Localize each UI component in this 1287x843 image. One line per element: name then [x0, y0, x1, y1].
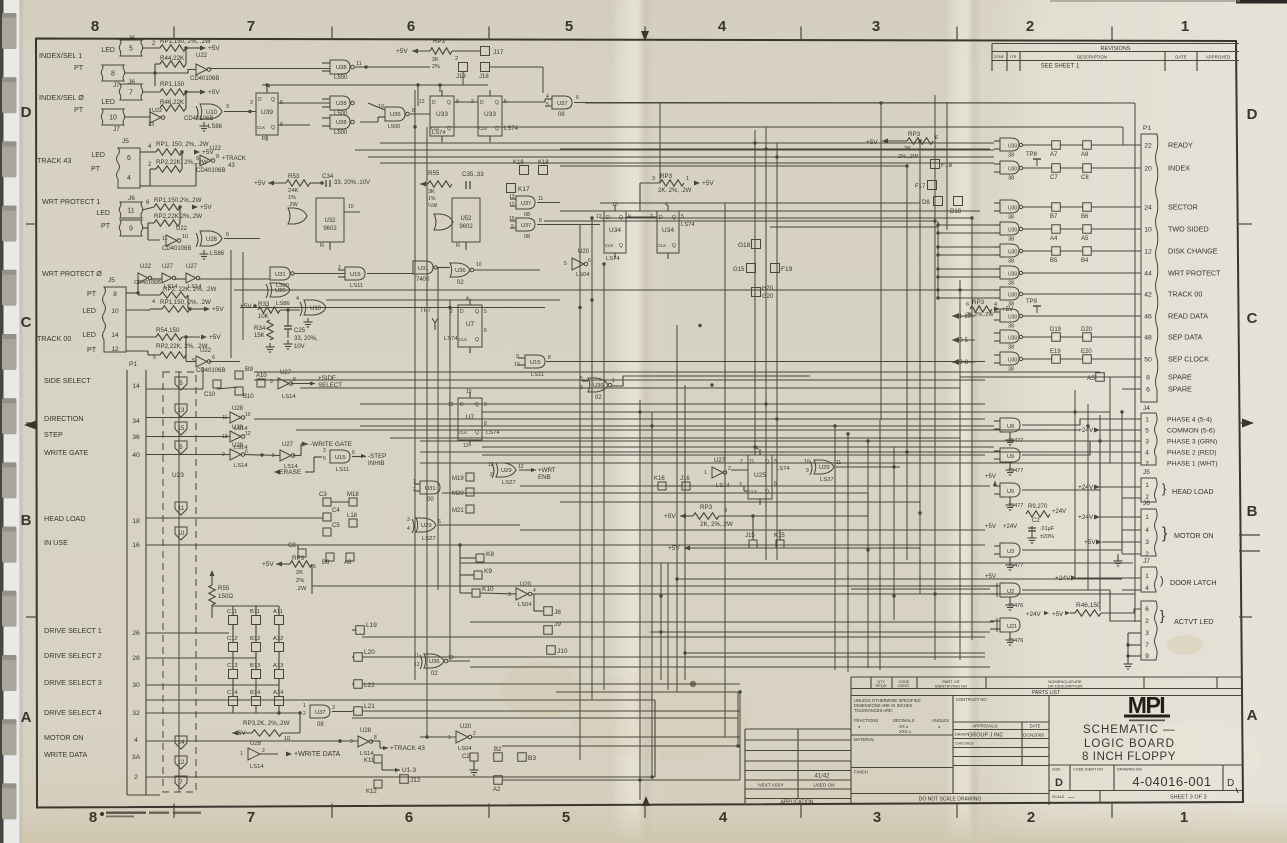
svg-text:5: 5: [484, 309, 487, 315]
svg-text:LS14: LS14: [234, 463, 248, 469]
svg-text:SCALE: SCALE: [1052, 795, 1065, 799]
svg-text:E19: E19: [1050, 349, 1061, 355]
svg-text:C7: C7: [1050, 175, 1058, 181]
svg-text:CLK: CLK: [605, 243, 613, 248]
svg-text:±20%: ±20%: [1040, 534, 1054, 540]
svg-text:41/42: 41/42: [814, 774, 830, 780]
svg-text:H20: H20: [762, 286, 774, 292]
svg-text:TWO SIDED: TWO SIDED: [1168, 225, 1209, 234]
svg-text:C13: C13: [227, 663, 238, 669]
svg-text:5: 5: [272, 453, 275, 459]
svg-text:D: D: [432, 100, 436, 106]
svg-text:+5V: +5V: [1084, 539, 1096, 546]
svg-text:J19: J19: [456, 74, 466, 80]
svg-text:C4: C4: [332, 508, 340, 514]
svg-text:22: 22: [1144, 143, 1152, 150]
svg-text:J4: J4: [1143, 405, 1150, 412]
svg-text:LS74: LS74: [606, 256, 620, 262]
svg-text:38: 38: [1008, 215, 1014, 221]
svg-text:4: 4: [127, 175, 131, 182]
svg-text:INDEX/SEL Ø: INDEX/SEL Ø: [39, 93, 84, 102]
svg-text:U38: U38: [336, 65, 347, 71]
svg-text:1: 1: [448, 735, 451, 741]
svg-text:G20: G20: [762, 294, 774, 300]
svg-text:3A: 3A: [132, 754, 141, 761]
svg-text:24K: 24K: [288, 188, 298, 194]
svg-text:DIRECTION: DIRECTION: [44, 414, 84, 423]
svg-text:A6: A6: [344, 560, 352, 566]
svg-text:46: 46: [1144, 314, 1152, 321]
svg-text:10: 10: [1144, 227, 1152, 234]
svg-text:3: 3: [323, 448, 326, 454]
svg-text:PHASE 2 (RED): PHASE 2 (RED): [1167, 450, 1216, 457]
svg-text:LS86: LS86: [208, 124, 223, 130]
svg-text:RP1,150,2%,.2W: RP1,150,2%,.2W: [154, 197, 202, 204]
svg-text:10: 10: [348, 204, 354, 210]
svg-text:}: }: [1162, 481, 1167, 496]
svg-text:18: 18: [132, 518, 140, 525]
svg-text:LS14: LS14: [250, 764, 264, 770]
svg-text:PHASE 1 (WHT): PHASE 1 (WHT): [1167, 461, 1218, 468]
svg-text:R: R: [262, 136, 266, 142]
svg-text:2: 2: [728, 466, 731, 472]
svg-text:Q: Q: [475, 309, 479, 315]
svg-text:G18: G18: [738, 242, 751, 249]
svg-text:B9: B9: [245, 366, 253, 373]
svg-text:LS74: LS74: [681, 222, 695, 228]
svg-text:12: 12: [596, 214, 602, 220]
svg-text:A4: A4: [1050, 236, 1058, 242]
svg-text:3: 3: [226, 104, 229, 110]
svg-text:4: 4: [533, 588, 536, 594]
svg-text:4: 4: [718, 18, 727, 35]
svg-text:U10: U10: [206, 110, 218, 116]
svg-text:8: 8: [1146, 375, 1150, 382]
svg-text:8: 8: [111, 71, 115, 78]
svg-text:15: 15: [178, 426, 185, 432]
svg-text:TRACK 43: TRACK 43: [37, 156, 71, 165]
svg-text:M21: M21: [452, 508, 464, 514]
svg-text:LED: LED: [96, 210, 110, 217]
svg-text:D: D: [480, 100, 484, 106]
svg-text:J10: J10: [557, 648, 568, 655]
svg-text:C8: C8: [1081, 175, 1089, 181]
svg-text:J5: J5: [122, 138, 129, 145]
svg-text:LS27: LS27: [502, 480, 516, 486]
svg-text:+5V: +5V: [208, 89, 220, 96]
svg-text:44: 44: [1144, 271, 1152, 278]
svg-text:U15: U15: [530, 360, 541, 366]
svg-text:INDEX: INDEX: [1168, 164, 1190, 173]
svg-text:2: 2: [1026, 18, 1034, 35]
svg-text:+24V: +24V: [1003, 524, 1017, 530]
svg-text:U36: U36: [429, 659, 440, 665]
svg-text:1%: 1%: [288, 195, 296, 201]
svg-text:OR DESCRIPTION: OR DESCRIPTION: [1048, 684, 1083, 689]
svg-text:4: 4: [296, 296, 299, 302]
svg-text:WRT PROTECT Ø: WRT PROTECT Ø: [42, 269, 102, 278]
svg-text:IN USE: IN USE: [44, 538, 68, 547]
svg-text:U30: U30: [1008, 206, 1017, 212]
svg-text:ENB: ENB: [538, 474, 551, 481]
svg-text:REQD: REQD: [876, 684, 887, 688]
svg-text:D: D: [21, 104, 32, 121]
svg-text:1: 1: [612, 378, 615, 384]
svg-text:6: 6: [484, 328, 487, 334]
svg-text:U20: U20: [460, 724, 472, 730]
svg-text:2K, 2%, .2W: 2K, 2%, .2W: [658, 188, 692, 194]
svg-text:11: 11: [127, 208, 134, 215]
svg-text:PHASE 3 (GRN): PHASE 3 (GRN): [1167, 439, 1217, 446]
svg-text:TRACK 00: TRACK 00: [1168, 290, 1202, 299]
svg-text:U37: U37: [521, 223, 531, 229]
svg-text:RP1,150, 2%, .2W: RP1,150, 2%, .2W: [160, 38, 211, 45]
svg-text:.XXX ±: .XXX ±: [898, 729, 912, 734]
svg-text:LS14: LS14: [282, 394, 296, 400]
svg-text:1: 1: [1145, 573, 1149, 580]
svg-text:U33: U33: [484, 111, 496, 118]
svg-text:A5: A5: [1087, 375, 1095, 382]
svg-text:J17: J17: [493, 49, 504, 56]
svg-text:DRIVE SELECT 3: DRIVE SELECT 3: [44, 678, 102, 687]
svg-text:F17: F17: [915, 184, 926, 190]
svg-text:Q: Q: [495, 100, 499, 106]
svg-text:4: 4: [152, 299, 155, 305]
svg-text:36: 36: [132, 434, 140, 441]
svg-text:U36: U36: [455, 268, 466, 274]
svg-text:U52: U52: [460, 216, 472, 222]
svg-text:-ERASE: -ERASE: [277, 469, 302, 476]
svg-text:R55: R55: [428, 170, 440, 177]
svg-text:PT: PT: [74, 63, 84, 72]
svg-text:38: 38: [1008, 176, 1014, 182]
svg-text:13: 13: [463, 443, 469, 449]
svg-text:3: 3: [652, 176, 655, 182]
svg-text:13: 13: [178, 408, 185, 414]
svg-text:C3: C3: [319, 492, 327, 498]
svg-text:A7: A7: [1050, 152, 1058, 158]
svg-text:9: 9: [516, 354, 519, 360]
svg-text:K8: K8: [486, 551, 494, 558]
svg-text:A8: A8: [1081, 152, 1089, 158]
svg-text:40: 40: [132, 452, 140, 459]
svg-text:LTR: LTR: [1010, 55, 1017, 59]
svg-text:+TRACK: +TRACK: [222, 156, 246, 162]
svg-text:38: 38: [1008, 237, 1014, 243]
svg-text:43: 43: [228, 163, 235, 169]
svg-text:4: 4: [1145, 585, 1149, 592]
svg-text:14: 14: [111, 332, 119, 339]
svg-text:J12: J12: [410, 777, 421, 784]
svg-text:D: D: [460, 402, 464, 408]
svg-text:6: 6: [226, 232, 229, 238]
svg-text:C10: C10: [204, 392, 216, 398]
svg-text:DOOR LATCH: DOOR LATCH: [1170, 578, 1217, 587]
svg-text:38: 38: [1008, 324, 1014, 330]
svg-text:12: 12: [245, 431, 251, 437]
svg-text:LED: LED: [82, 332, 96, 339]
svg-text:C12: C12: [227, 636, 238, 642]
svg-text:U21: U21: [1007, 624, 1017, 630]
svg-text:M18: M18: [347, 492, 359, 498]
svg-text:ANGLES: ANGLES: [932, 718, 949, 723]
svg-text:PT: PT: [91, 166, 101, 173]
svg-text:WRITE GATE: WRITE GATE: [44, 448, 88, 457]
svg-text:U30: U30: [1008, 250, 1017, 256]
svg-text:TP7: TP7: [420, 308, 432, 314]
svg-text:LS74: LS74: [486, 430, 500, 436]
svg-text:08: 08: [558, 112, 565, 118]
svg-text:D: D: [258, 97, 262, 103]
svg-text:LS11: LS11: [531, 372, 544, 378]
svg-text:6: 6: [966, 302, 969, 308]
svg-text:+TRACK 43: +TRACK 43: [390, 745, 425, 752]
svg-text:3: 3: [739, 482, 742, 488]
svg-text:DCN2068: DCN2068: [1023, 733, 1044, 739]
svg-text:K11: K11: [364, 758, 375, 764]
svg-text:K9: K9: [484, 568, 492, 575]
svg-text:IDENT: IDENT: [898, 684, 910, 688]
svg-text:LS27: LS27: [422, 536, 436, 542]
svg-text:1: 1: [303, 703, 306, 709]
svg-text:+5V: +5V: [664, 513, 676, 520]
svg-text:U22: U22: [200, 348, 212, 354]
svg-text:D20: D20: [1081, 327, 1093, 333]
svg-text:U30: U30: [1008, 315, 1017, 321]
svg-text:9: 9: [129, 226, 133, 233]
svg-text:5: 5: [564, 261, 567, 267]
svg-text:B: B: [1247, 503, 1258, 520]
svg-text:RP1,150, 2%, .2W: RP1,150, 2%, .2W: [160, 299, 211, 306]
svg-text:38: 38: [1008, 345, 1014, 351]
svg-text:5: 5: [562, 809, 570, 826]
svg-text:+24V: +24V: [1026, 611, 1041, 618]
svg-text:K10: K10: [482, 586, 494, 593]
svg-text:1: 1: [240, 751, 243, 757]
svg-text:U33: U33: [436, 111, 448, 118]
svg-text:38: 38: [1008, 153, 1014, 159]
svg-text:1%: 1%: [428, 196, 436, 202]
svg-text:J6: J6: [1143, 500, 1150, 507]
svg-text:6: 6: [576, 95, 579, 101]
svg-text:WRITE DATA: WRITE DATA: [44, 750, 87, 759]
svg-text:4-04016-001: 4-04016-001: [1132, 774, 1211, 789]
svg-text:2: 2: [473, 731, 476, 737]
svg-text:HEAD LOAD: HEAD LOAD: [44, 514, 86, 523]
svg-text:4: 4: [1145, 527, 1149, 534]
svg-text:U26: U26: [206, 237, 218, 243]
svg-text:Q: Q: [619, 243, 623, 249]
svg-text:6: 6: [405, 809, 413, 826]
svg-text:DATE: DATE: [1030, 724, 1041, 729]
svg-text:RP2,22K,2%,.2W: RP2,22K,2%,.2W: [154, 213, 202, 220]
svg-text:U27: U27: [280, 370, 292, 376]
svg-text:U30: U30: [1008, 336, 1017, 342]
svg-text:9: 9: [484, 402, 487, 408]
svg-text:3: 3: [508, 592, 511, 598]
svg-text:.2W: .2W: [288, 202, 299, 208]
svg-text:LS74: LS74: [776, 466, 790, 472]
svg-text:10: 10: [466, 389, 472, 395]
svg-text:2: 2: [490, 472, 493, 478]
svg-text:5: 5: [565, 18, 573, 35]
svg-text:D: D: [1247, 106, 1258, 123]
svg-text:3: 3: [873, 809, 881, 826]
svg-text:L21: L21: [364, 703, 375, 710]
svg-text:R53: R53: [288, 173, 300, 180]
svg-text:00: 00: [427, 497, 434, 503]
svg-text:U37: U37: [521, 201, 531, 207]
svg-text:150Ω: 150Ω: [218, 593, 233, 600]
svg-text:D18: D18: [950, 209, 962, 215]
svg-text:D: D: [1055, 777, 1063, 789]
svg-text:LED: LED: [82, 308, 96, 315]
svg-text:3: 3: [872, 18, 880, 35]
svg-text:LED: LED: [101, 99, 115, 106]
svg-text:U28: U28: [232, 406, 244, 412]
svg-text:10K: 10K: [258, 314, 269, 320]
svg-text:U27: U27: [186, 264, 198, 270]
svg-text:MOTOR ON: MOTOR ON: [1174, 531, 1213, 540]
svg-text:6: 6: [352, 450, 355, 456]
svg-text:F19: F19: [781, 266, 793, 273]
svg-text:U30: U30: [1008, 358, 1017, 364]
svg-text:5: 5: [153, 355, 156, 361]
svg-text:U27: U27: [162, 264, 174, 270]
svg-text:COMMON (5-6): COMMON (5-6): [1167, 428, 1215, 435]
svg-text:¼W: ¼W: [428, 203, 437, 209]
svg-text:U39: U39: [261, 109, 273, 116]
svg-text:M19: M19: [452, 476, 464, 482]
svg-text:12: 12: [509, 202, 515, 208]
svg-text:B6: B6: [322, 560, 330, 566]
svg-text:LS86: LS86: [276, 301, 290, 307]
svg-text:P1: P1: [129, 361, 137, 368]
svg-text:MATERIAL: MATERIAL: [854, 737, 875, 742]
svg-text:B10: B10: [243, 394, 254, 400]
svg-text:U37: U37: [557, 101, 568, 107]
svg-text:LED: LED: [91, 152, 105, 159]
svg-text:DRIVE SELECT 4: DRIVE SELECT 4: [44, 708, 102, 717]
svg-text:SEP CLOCK: SEP CLOCK: [1168, 355, 1209, 364]
svg-text:2K: 2K: [296, 570, 303, 576]
svg-text:U38: U38: [336, 120, 347, 126]
svg-text:J6: J6: [128, 195, 135, 202]
svg-text:DRAWING NO: DRAWING NO: [1117, 768, 1142, 772]
svg-text:): ): [1160, 575, 1164, 587]
svg-text:6: 6: [212, 355, 215, 361]
svg-text:NEXT ASSY: NEXT ASSY: [758, 783, 783, 788]
svg-text:14: 14: [132, 383, 140, 390]
svg-text:LED: LED: [101, 47, 115, 54]
svg-text:4: 4: [724, 508, 727, 514]
svg-text:5: 5: [1145, 428, 1149, 435]
svg-text:CD40106B: CD40106B: [196, 368, 225, 374]
svg-text:U37: U37: [315, 710, 326, 716]
svg-text:R44,22K: R44,22K: [160, 55, 185, 62]
svg-text:U22: U22: [176, 226, 188, 232]
svg-text:+24V: +24V: [1052, 509, 1066, 515]
svg-text:L20: L20: [364, 649, 375, 656]
svg-text:2K: 2K: [432, 57, 439, 63]
svg-text:33, 20%,: 33, 20%,: [294, 336, 318, 342]
svg-text:RP3: RP3: [700, 504, 713, 511]
svg-text:A2: A2: [493, 787, 501, 793]
svg-text:4: 4: [407, 526, 410, 532]
svg-text:11: 11: [162, 236, 168, 242]
svg-text:LS86: LS86: [210, 251, 225, 257]
svg-text:U27: U27: [282, 442, 294, 448]
svg-text:FRACTIONS: FRACTIONS: [854, 718, 878, 723]
svg-text:20: 20: [1144, 166, 1152, 173]
svg-text:.2W: .2W: [296, 586, 307, 592]
svg-text:U20: U20: [520, 582, 532, 588]
svg-text:LS11: LS11: [350, 283, 363, 289]
svg-text:DRIVE SELECT 1: DRIVE SELECT 1: [44, 626, 102, 635]
svg-text:02: 02: [595, 395, 602, 401]
svg-text:U29: U29: [501, 468, 512, 474]
svg-text:4: 4: [719, 809, 728, 826]
svg-text:TP9: TP9: [1026, 299, 1038, 305]
svg-text:8: 8: [216, 154, 219, 160]
svg-text:C5: C5: [332, 523, 340, 529]
svg-text:48: 48: [1144, 335, 1152, 342]
svg-text:8: 8: [539, 218, 542, 224]
svg-text:5: 5: [546, 102, 549, 108]
svg-text:-STEP: -STEP: [368, 453, 386, 460]
svg-text:6: 6: [127, 155, 131, 162]
svg-text:5: 5: [681, 214, 684, 220]
svg-text:U31: U31: [275, 272, 286, 278]
svg-text:READY: READY: [1168, 141, 1193, 150]
svg-text:1: 1: [704, 470, 707, 476]
svg-text:U28: U28: [360, 728, 372, 734]
svg-text:+5V: +5V: [254, 180, 266, 187]
svg-text:9: 9: [511, 224, 514, 230]
svg-text:J15: J15: [745, 533, 755, 539]
svg-text:D19: D19: [1050, 327, 1062, 333]
svg-text:L19: L19: [366, 622, 377, 629]
svg-text:+24V: +24V: [1078, 427, 1094, 434]
svg-text:B3: B3: [528, 755, 536, 762]
svg-text:C25: C25: [294, 328, 306, 334]
svg-text:2: 2: [250, 100, 253, 106]
svg-text:GROUP J INC: GROUP J INC: [968, 733, 1003, 739]
svg-text:B13: B13: [250, 663, 260, 669]
svg-text:C: C: [1247, 310, 1258, 327]
svg-text:DECIMALS: DECIMALS: [893, 718, 915, 723]
svg-text:U3: U3: [1007, 549, 1014, 555]
svg-text:FINISH: FINISH: [854, 770, 868, 775]
svg-text:12: 12: [178, 760, 185, 766]
svg-text:B6: B6: [1081, 214, 1089, 220]
svg-text:10V: 10V: [294, 344, 305, 350]
svg-text:30: 30: [132, 682, 140, 689]
svg-text:U29: U29: [819, 465, 830, 471]
svg-text:ACTVT LED: ACTVT LED: [1174, 617, 1213, 626]
svg-text:4: 4: [466, 296, 469, 302]
svg-text:CHECKED: CHECKED: [955, 742, 974, 746]
svg-text:Q: Q: [271, 125, 275, 131]
svg-text:50: 50: [1144, 357, 1152, 364]
svg-text:R9,270: R9,270: [1028, 504, 1048, 510]
svg-text:L22: L22: [364, 682, 375, 689]
svg-text:+5V: +5V: [1002, 306, 1014, 313]
svg-text:J5: J5: [1143, 469, 1150, 476]
svg-text:3K: 3K: [428, 189, 435, 195]
svg-text:U30: U30: [1008, 167, 1017, 173]
svg-text:IDENTIFYING NO: IDENTIFYING NO: [935, 684, 967, 689]
